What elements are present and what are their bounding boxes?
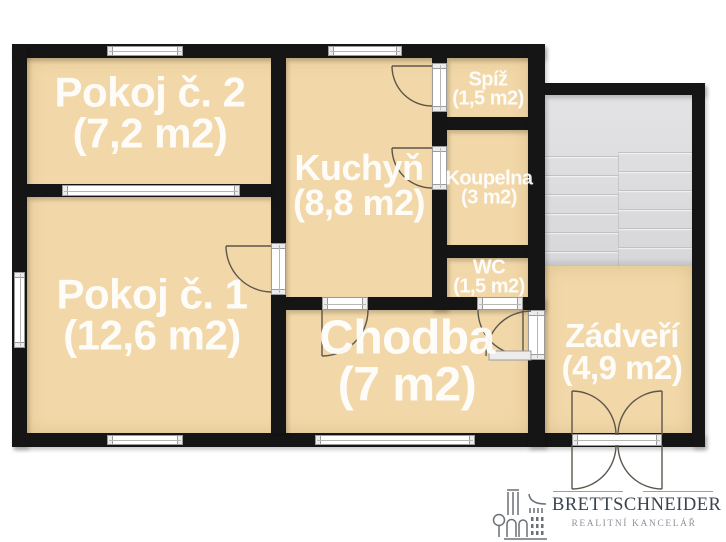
room-name: Chodba (319, 315, 495, 362)
room-area: (4,9 m2) (562, 352, 683, 384)
room-area: (7 m2) (319, 362, 495, 409)
room-area: (1,5 m2) (453, 278, 525, 297)
room-label-pokoj-2: Pokoj č. 2 (7,2 m2) (54, 72, 245, 153)
brand-tagline: REALITNÍ KANCELÁŘ (552, 519, 716, 529)
room-name: Kuchyň (293, 151, 425, 186)
room-area: (8,8 m2) (293, 186, 425, 221)
room-name: Pokoj č. 2 (54, 72, 245, 113)
brand-rule-right (643, 491, 713, 492)
room-name: Zádveří (562, 320, 683, 352)
brand-rule-left (553, 491, 623, 492)
brand-name: BRETTSCHNEIDER (552, 495, 716, 516)
room-label-kuchyn: Kuchyň (8,8 m2) (293, 151, 425, 221)
room-area: (3 m2) (445, 189, 532, 208)
room-label-spiz: Spíž (1,5 m2) (452, 71, 524, 110)
room-area: (7,2 m2) (54, 113, 245, 154)
room-label-pokoj-1: Pokoj č. 1 (12,6 m2) (56, 274, 247, 355)
room-label-koupelna: Koupelna (3 m2) (445, 170, 532, 209)
room-name: Pokoj č. 1 (56, 274, 247, 315)
room-area: (12,6 m2) (56, 315, 247, 356)
brettschneider-logo-icon (490, 484, 550, 542)
floorplan-canvas: Pokoj č. 2 (7,2 m2) Pokoj č. 1 (12,6 m2)… (0, 0, 726, 542)
entrance-double-door (572, 391, 662, 489)
room-label-zadveri: Zádveří (4,9 m2) (562, 320, 683, 384)
room-area: (1,5 m2) (452, 90, 524, 109)
door-spiz (392, 66, 432, 106)
room-label-wc: WC (1,5 m2) (453, 259, 525, 298)
room-label-chodba: Chodba (7 m2) (319, 315, 495, 408)
